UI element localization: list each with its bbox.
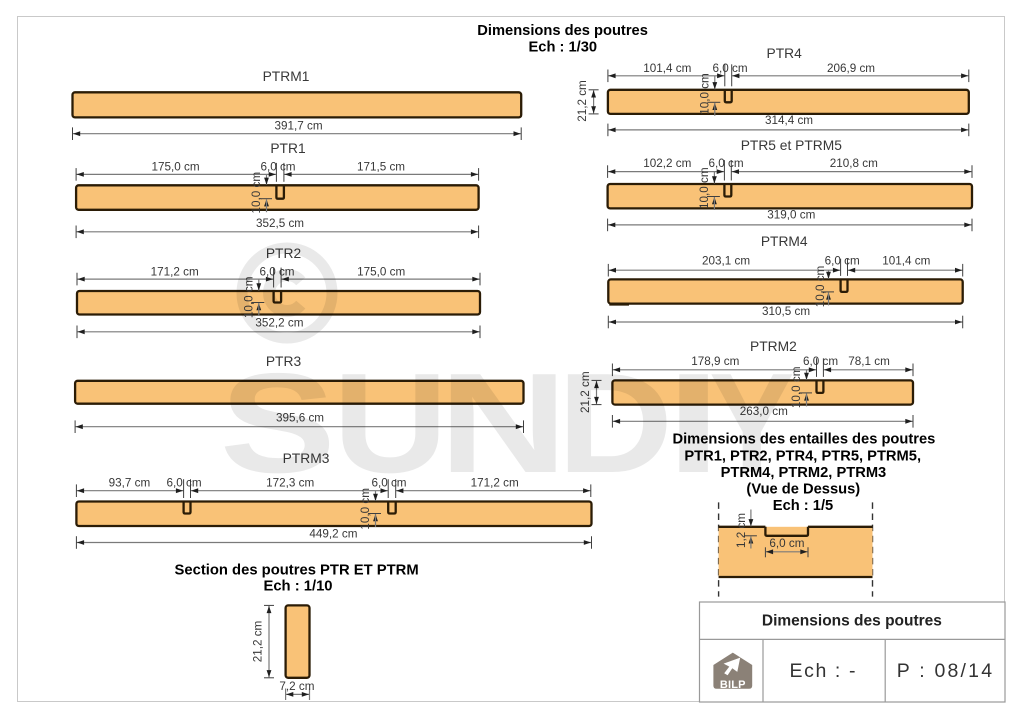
svg-text:352,5 cm: 352,5 cm (256, 217, 304, 230)
svg-text:175,0 cm: 175,0 cm (357, 266, 405, 279)
svg-text:6,0 cm: 6,0 cm (709, 157, 744, 170)
svg-text:210,8 cm: 210,8 cm (830, 157, 878, 170)
svg-text:PTR5 et PTRM5: PTR5 et PTRM5 (741, 138, 843, 153)
svg-text:S: S (220, 343, 336, 502)
svg-text:171,5 cm: 171,5 cm (357, 161, 405, 174)
svg-text:10,0 cm: 10,0 cm (814, 266, 827, 308)
svg-text:6,0 cm: 6,0 cm (769, 537, 804, 550)
svg-text:101,4 cm: 101,4 cm (882, 254, 930, 267)
svg-text:78,1 cm: 78,1 cm (848, 355, 890, 368)
svg-text:10,0 cm: 10,0 cm (698, 73, 711, 115)
svg-text:6,0 cm: 6,0 cm (260, 161, 295, 174)
svg-text:175,0 cm: 175,0 cm (152, 161, 200, 174)
svg-text:319,0 cm: 319,0 cm (767, 209, 815, 222)
svg-text:6,0 cm: 6,0 cm (825, 254, 860, 267)
svg-text:N: N (439, 344, 568, 503)
svg-text:449,2 cm: 449,2 cm (309, 528, 357, 541)
svg-text:U: U (333, 344, 448, 503)
svg-text:206,9 cm: 206,9 cm (827, 62, 875, 75)
svg-text:BILP: BILP (720, 679, 746, 691)
svg-text:PTR1: PTR1 (270, 141, 305, 156)
svg-text:PTRM1: PTRM1 (263, 69, 310, 84)
svg-text:Dimensions des poutres: Dimensions des poutres (477, 23, 648, 39)
svg-text:203,1 cm: 203,1 cm (702, 254, 750, 267)
svg-text:6,0 cm: 6,0 cm (713, 62, 748, 75)
svg-text:391,7 cm: 391,7 cm (275, 120, 323, 133)
svg-text:10,0 cm: 10,0 cm (250, 172, 263, 214)
svg-text:6,0 cm: 6,0 cm (803, 355, 838, 368)
svg-text:21,2 cm: 21,2 cm (576, 80, 589, 122)
svg-text:310,5 cm: 310,5 cm (762, 305, 810, 318)
svg-text:101,4 cm: 101,4 cm (643, 62, 691, 75)
svg-text:P : 08/14: P : 08/14 (897, 660, 995, 682)
svg-text:102,2 cm: 102,2 cm (643, 157, 691, 170)
svg-text:Section des poutres PTR ET PTR: Section des poutres PTR ET PTRM (175, 563, 419, 579)
svg-text:21,2 cm: 21,2 cm (252, 621, 265, 663)
svg-text:Ech : 1/30: Ech : 1/30 (529, 39, 598, 55)
svg-text:PTRM4: PTRM4 (761, 234, 808, 249)
svg-text:171,2 cm: 171,2 cm (151, 266, 199, 279)
svg-text:PTR4: PTR4 (767, 46, 803, 61)
svg-text:Ech : 1/10: Ech : 1/10 (263, 578, 332, 594)
svg-text:6,0 cm: 6,0 cm (167, 476, 202, 489)
svg-text:D: D (557, 345, 673, 503)
svg-text:10,0 cm: 10,0 cm (698, 167, 711, 209)
svg-text:7,2 cm: 7,2 cm (279, 680, 314, 693)
svg-text:314,4 cm: 314,4 cm (765, 114, 813, 127)
svg-text:93,7 cm: 93,7 cm (109, 476, 151, 489)
svg-text:Y: Y (709, 344, 794, 503)
svg-text:Ech : -: Ech : - (790, 660, 858, 682)
svg-text:1,2 cm: 1,2 cm (735, 513, 748, 548)
svg-text:Dimensions des poutres: Dimensions des poutres (762, 613, 942, 630)
